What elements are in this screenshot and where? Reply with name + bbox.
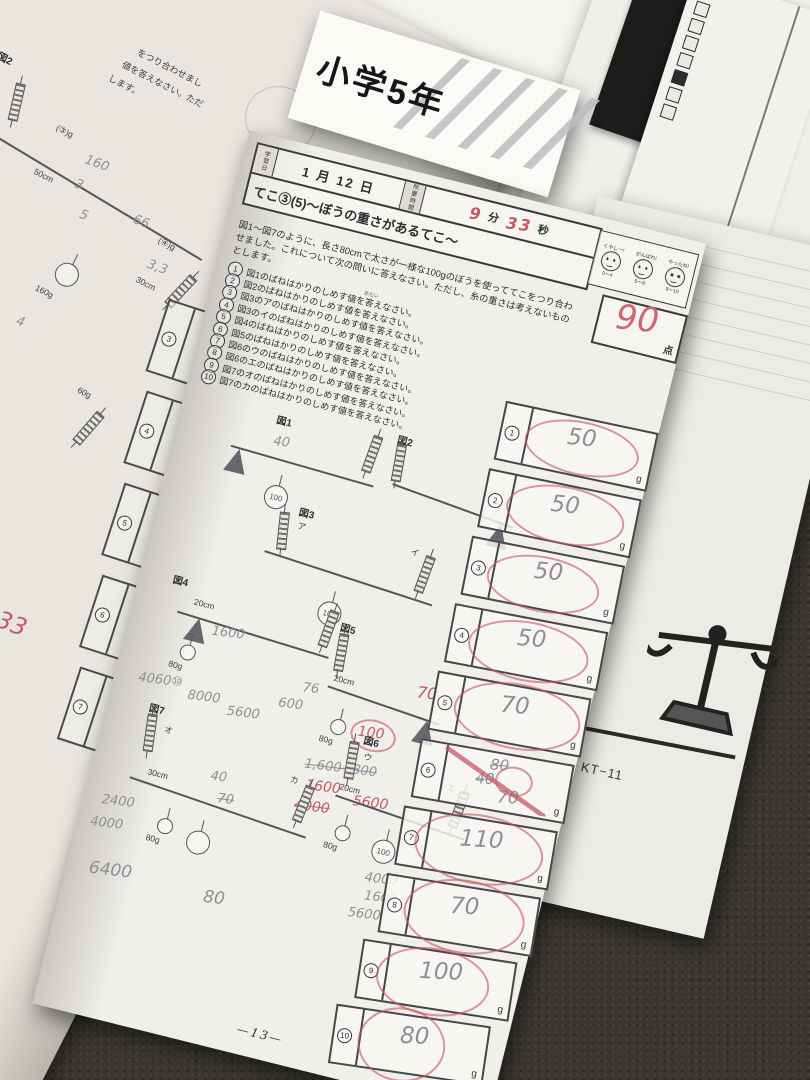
spring-scale-icon: [413, 555, 435, 594]
kanji-box: [687, 18, 705, 36]
balance-scale-icon: [630, 608, 784, 754]
pencil-note: 40: [273, 434, 291, 451]
scale-f-caption: カ: [289, 773, 300, 787]
fig6-weight-caption: 80g: [322, 839, 338, 852]
time-seconds-handwritten: 33: [505, 213, 534, 235]
answer-number: 7: [71, 697, 90, 716]
pencil-note-crossed: 70: [216, 791, 234, 808]
pencil-note: 5600: [226, 704, 261, 723]
spring-scale-icon: [8, 83, 26, 122]
page-number: —13—: [236, 1022, 285, 1047]
pencil-note: 5: [77, 207, 90, 224]
answer-number: 5: [115, 513, 134, 532]
weight-icon: [333, 824, 352, 843]
answer-unit: g: [520, 939, 527, 951]
answer-number: 10: [336, 1027, 353, 1044]
fig5-length-caption: 20cm: [333, 673, 356, 688]
kanji-box: [671, 69, 689, 87]
spring-scale-icon: [361, 435, 383, 474]
kanji-box: [682, 35, 700, 53]
red-corner-note: 33: [0, 605, 31, 642]
face-unit: くやしー! 0〜4: [596, 242, 625, 280]
answer-unit: g: [602, 607, 610, 619]
pencil-note: 160: [83, 153, 111, 176]
score-handwritten: 90: [614, 297, 661, 341]
pencil-note: 76: [302, 680, 320, 697]
pencil-note: 1600: [211, 624, 246, 643]
fig1-label: 図1: [275, 411, 294, 429]
weight-caption: 60g: [76, 385, 93, 400]
scale-e-caption: オ: [163, 723, 174, 737]
pencil-note: 80: [202, 887, 226, 909]
pencil-note: 3: [73, 177, 86, 194]
spring-scale-icon: [276, 511, 290, 550]
spring-scale-icon: [333, 633, 349, 672]
answer-number: 3: [470, 559, 488, 577]
lever-bar: [264, 550, 432, 606]
answer-number: 8: [386, 896, 403, 913]
pencil-note: 40: [210, 769, 228, 786]
pencil-note: 600: [277, 695, 303, 713]
weight-icon: [155, 816, 174, 835]
figure2-label: 図2: [0, 48, 16, 68]
kanji-box: [693, 1, 711, 19]
seconds-unit: 秒: [536, 221, 552, 240]
answer-number: 6: [93, 605, 112, 624]
scale-b-caption: イ: [409, 546, 420, 560]
fig7-weight-caption: 80g: [145, 832, 161, 845]
kanji-box: [676, 52, 694, 70]
time-minutes-handwritten: 9: [468, 203, 484, 224]
photo-of-workbook-on-carpet: KT−11 をつり合わせまし 値を答えなさい。ただ します。 図2 (③)g 5…: [0, 0, 810, 1080]
lever-bar: [231, 445, 374, 488]
pencil-note: 8000: [187, 688, 222, 707]
cover-title: 小学5年: [311, 42, 452, 128]
weight-caption: 160g: [34, 283, 55, 301]
answer-unit: g: [471, 1068, 478, 1080]
scale-right-caption: (④)g: [156, 235, 177, 253]
weight-icon: [184, 828, 213, 857]
kanji-box: [660, 103, 678, 121]
weight-icon: [328, 717, 347, 736]
face-unit: やったね! 9〜10: [661, 258, 690, 296]
weight-icon: 100: [261, 483, 290, 512]
spring-scale-icon: [391, 443, 407, 482]
fig5-weight-caption: 80g: [318, 733, 334, 746]
answer-unit: g: [586, 673, 594, 685]
answer-unit: g: [635, 474, 643, 486]
answer-unit: g: [497, 1004, 504, 1016]
answer-number: 1: [503, 424, 521, 442]
fulcrum-triangle: [183, 616, 210, 645]
answer-unit: g: [536, 873, 543, 885]
answer-number: 3: [160, 329, 179, 348]
answer-number: 5: [436, 694, 453, 711]
answer-number: 2: [486, 491, 504, 509]
minutes-unit: 分: [486, 208, 502, 227]
pencil-note: 3,3: [145, 257, 170, 278]
pencil-note: 5600: [347, 905, 382, 924]
scale-left-caption: (③)g: [54, 123, 75, 141]
lever-bar: [130, 776, 307, 838]
fulcrum-triangle: [223, 446, 250, 475]
scale-c-caption: ウ: [362, 750, 373, 764]
pencil-note: 4: [14, 314, 27, 331]
score-unit: 点: [662, 341, 675, 358]
answer-number: 4: [137, 421, 156, 440]
answer-unit: g: [553, 806, 560, 818]
answer-unit: g: [619, 540, 627, 552]
face-unit: がんばれ! 5〜8: [628, 250, 657, 288]
fig6-length-caption: 20cm: [339, 781, 362, 796]
spring-scale-icon: [72, 411, 104, 446]
length-right-caption: 30cm: [134, 274, 157, 292]
weight-icon: [51, 259, 83, 291]
sheet-code: KT−11: [580, 759, 625, 783]
scale-a-caption: ア: [296, 519, 307, 533]
kanji-box: [665, 86, 683, 104]
